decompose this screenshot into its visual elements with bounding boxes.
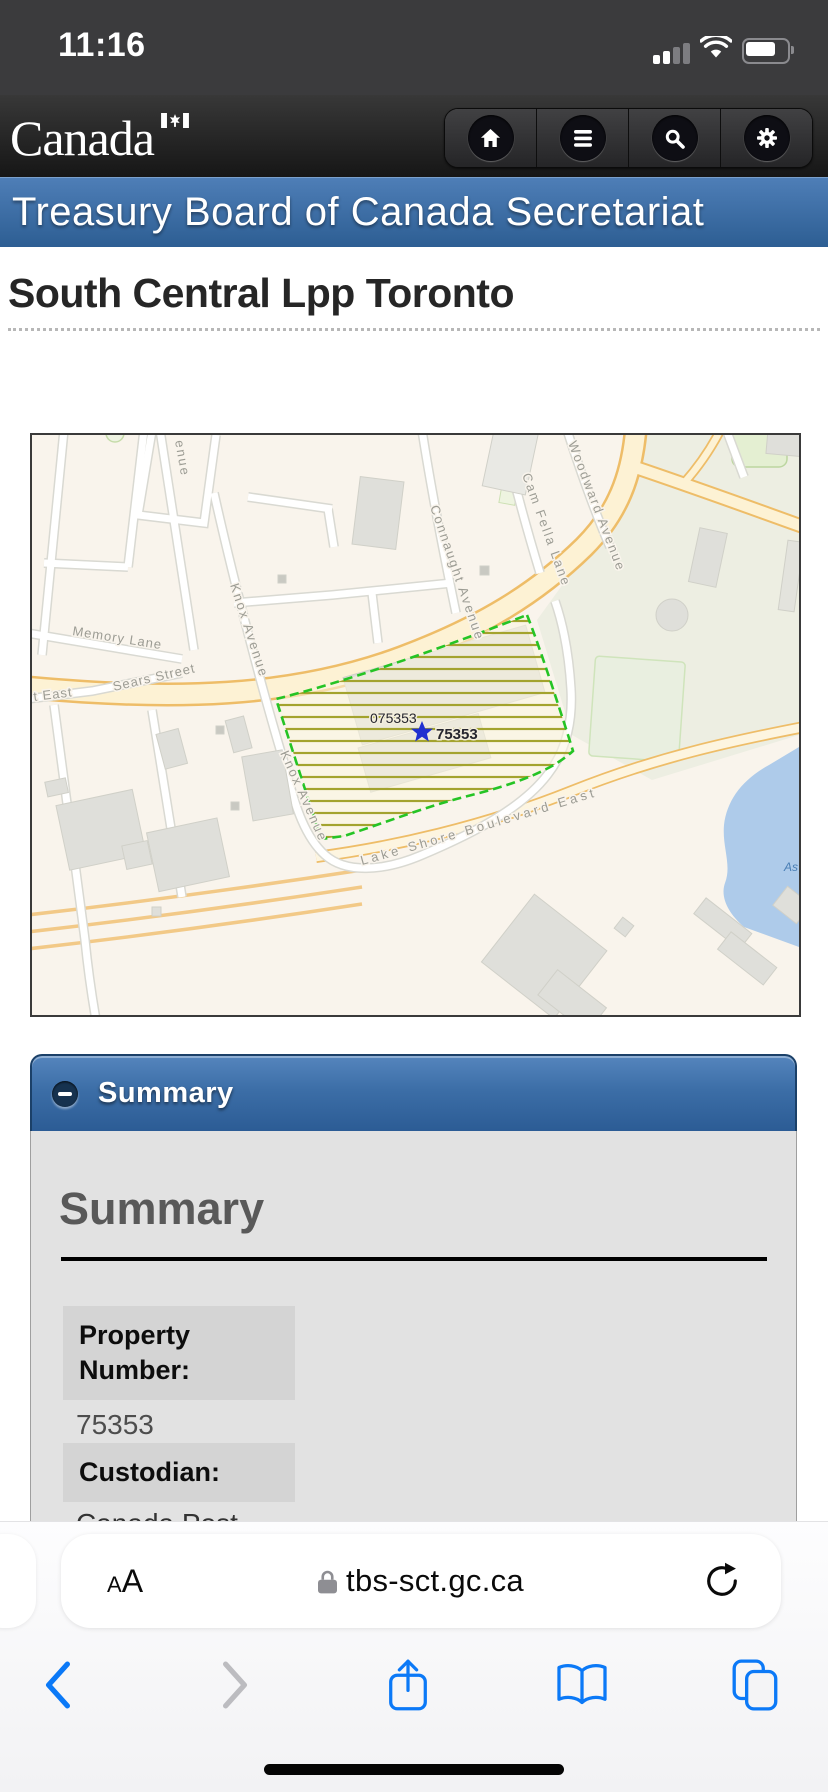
battery-icon <box>742 38 790 64</box>
field-label-property-number: Property Number: <box>63 1306 295 1400</box>
tabs-icon <box>730 1658 782 1712</box>
parcel-number-label: 075353 <box>370 710 417 726</box>
field-label-custodian: Custodian: <box>63 1443 295 1502</box>
reload-button[interactable] <box>703 1562 741 1605</box>
page-title: South Central Lpp Toronto <box>8 270 514 317</box>
search-icon <box>652 115 698 161</box>
gear-icon <box>744 115 790 161</box>
home-indicator[interactable] <box>264 1764 564 1775</box>
menu-icon <box>560 115 606 161</box>
canada-flag-icon <box>160 113 190 133</box>
forward-button[interactable] <box>190 1652 280 1718</box>
collapse-minus-icon[interactable] <box>52 1081 78 1107</box>
menu-button[interactable] <box>536 109 628 167</box>
status-bar: 11:16 <box>0 0 828 95</box>
gc-header: Canada <box>0 95 828 177</box>
chevron-left-icon <box>44 1661 72 1709</box>
tabs-button[interactable] <box>711 1652 801 1718</box>
wifi-icon <box>700 36 732 64</box>
book-icon <box>555 1662 609 1708</box>
search-button[interactable] <box>628 109 720 167</box>
bookmarks-button[interactable] <box>537 1652 627 1718</box>
home-icon <box>468 115 514 161</box>
summary-panel-body: Summary Property Number: 75353 Custodian… <box>30 1131 797 1521</box>
cellular-signal-icon <box>653 42 690 64</box>
url-text: tbs-sct.gc.ca <box>346 1563 524 1599</box>
summary-accordion-header[interactable]: Summary <box>30 1054 797 1131</box>
reload-icon <box>703 1562 741 1600</box>
canada-wordmark: Canada <box>10 109 154 167</box>
clock: 11:16 <box>58 26 146 65</box>
summary-accordion-title: Summary <box>98 1077 234 1110</box>
status-icons <box>653 36 790 64</box>
field-value-custodian: Canada Post <box>76 1508 238 1521</box>
lock-icon <box>318 1569 337 1594</box>
title-separator <box>8 328 820 331</box>
summary-heading: Summary <box>59 1183 264 1235</box>
water-label: As <box>783 860 798 874</box>
settings-button[interactable] <box>720 109 812 167</box>
summary-heading-rule <box>61 1257 767 1261</box>
share-button[interactable] <box>363 1652 453 1718</box>
back-button[interactable] <box>13 1652 103 1718</box>
home-button[interactable] <box>445 109 536 167</box>
adjacent-tab-peek[interactable] <box>0 1534 36 1628</box>
chevron-right-icon <box>221 1661 249 1709</box>
gc-nav-buttons <box>444 108 813 168</box>
department-banner: Treasury Board of Canada Secretariat <box>0 177 828 247</box>
iphone-screen: 11:16 Canada <box>0 0 828 1792</box>
field-value-property-number: 75353 <box>76 1409 154 1441</box>
share-icon <box>388 1658 428 1712</box>
address-bar[interactable]: AA tbs-sct.gc.ca <box>61 1534 781 1628</box>
map-field <box>589 656 686 762</box>
property-map[interactable]: enue Knox Avenue Knox Avenue Connaught A… <box>30 433 801 1017</box>
url-display: tbs-sct.gc.ca <box>61 1563 781 1599</box>
point-number-label: 75353 <box>436 726 478 743</box>
department-title: Treasury Board of Canada Secretariat <box>12 190 704 235</box>
safari-bottom-bar: AA tbs-sct.gc.ca <box>0 1521 828 1792</box>
